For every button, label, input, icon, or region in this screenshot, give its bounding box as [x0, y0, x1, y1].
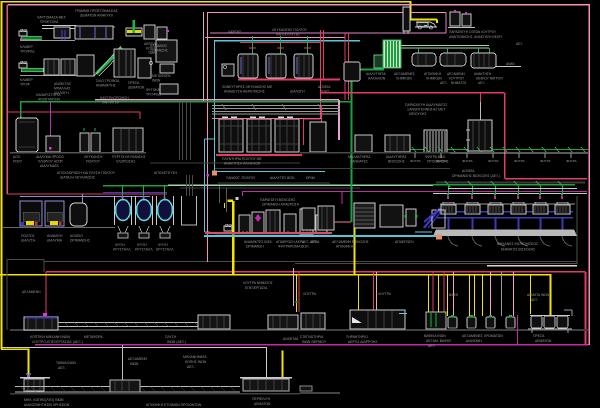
svg-text:ΔΕΞ. ΩΡΙΜ.: ΔΕΞ. ΩΡΙΜ.	[302, 240, 320, 244]
svg-text:ΞΗΡΑΝΤΗΡΙΟ: ΞΗΡΑΝΤΗΡΙΟ	[346, 335, 368, 339]
svg-text:ΑΠΟΧΛΩΡΙΩΣΗ ΚΑΙ ΠΛΥΣΗ ΠΟΛΤΟΥ: ΑΠΟΧΛΩΡΙΩΣΗ ΚΑΙ ΠΛΥΣΗ ΠΟΛΤΟΥ	[57, 171, 116, 175]
svg-text:ΦΙΛΤΡΑ: ΦΙΛΤΡΑ	[436, 159, 447, 163]
svg-text:ΝΗΜΑΤΟΣ ΒΙΣΚΟΖΗΣ: ΝΗΜΑΤΟΣ ΒΙΣΚΟΖΗΣ	[501, 248, 535, 252]
svg-text:ΞΑΝΘΟΓΕΝΝΗΣΗΣ ΜΕΤ.: ΞΑΝΘΟΓΕΝΝΗΣΗΣ ΜΕΤ.	[407, 108, 446, 112]
svg-text:ΔΙΑΚΟΣΜΗΤΙΚΩΝ ΧΡΗΣΕΩΝ: ΔΙΑΚΟΣΜΗΤΙΚΩΝ ΧΡΗΣΕΩΝ	[24, 403, 70, 407]
svg-text:ΔΕΞ.: ΔΕΞ.	[428, 344, 436, 348]
svg-text:ΒΙΣΚΟΖΗΣ: ΒΙΣΚΟΖΗΣ	[388, 160, 405, 164]
svg-text:ΔΕΜΑΤΩΝ: ΔΕΜΑΤΩΝ	[254, 402, 271, 406]
svg-text:ΤΡΟΦΟΔ: ΤΡΟΦΟΔ	[20, 50, 35, 54]
svg-text:ΦΙΛΤΡΑ: ΦΙΛΤΡΑ	[462, 159, 473, 163]
svg-text:ΚΟΠΤΙΚΗ ΜΗΧΑΝΗ ΙΝΩΝ: ΚΟΠΤΙΚΗ ΜΗΧΑΝΗ ΙΝΩΝ	[30, 335, 70, 339]
svg-text:ΔΙΑΛΥΤΗΡΑΣ: ΔΙΑΛΥΤΗΡΑΣ	[386, 155, 407, 159]
svg-text:ΙΝΩΝ ΘΕΡΜΟΥ: ΙΝΩΝ ΘΕΡΜΟΥ	[302, 340, 327, 344]
svg-text:ΔΙΑΛΥΜΑΤΑ: ΔΙΑΛΥΜΑΤΑ	[40, 164, 59, 168]
svg-text:ΩΡΙΜΑΝΣΗΣ ΒΙΣΚΟΖΗΣ (ΔΕΞ.): ΩΡΙΜΑΝΣΗΣ ΒΙΣΚΟΖΗΣ (ΔΕΞ.)	[452, 174, 500, 178]
svg-text:ΛΟΥΤΡΑ: ΛΟΥΤΡΑ	[303, 292, 317, 296]
svg-text:ΦΙΛΤΡΑ: ΦΙΛΤΡΑ	[540, 159, 551, 163]
svg-text:ΔΕΜΑΤΩΝ ΑΝΑΚΥΚΛ: ΔΕΜΑΤΩΝ ΑΝΑΚΥΚΛ	[80, 14, 114, 18]
svg-text:ΨΥΞΗ: ΨΥΞΗ	[115, 243, 125, 247]
svg-text:ΑΝΑΜΙΚΤΗΣ: ΑΝΑΜΙΚΤΗΣ	[96, 84, 116, 88]
svg-text:ΠΑΡΑΣΚΕΥΗ ΔΙΑΛΥΜΑΤΟΣ: ΠΑΡΑΣΚΕΥΗ ΔΙΑΛΥΜΑΤΟΣ	[405, 103, 447, 107]
svg-text:ΙΝΩΝ (ΔΕΞ.): ΙΝΩΝ (ΔΕΞ.)	[167, 340, 186, 344]
svg-text:ΔΕΞ.: ΔΕΞ.	[187, 365, 195, 369]
svg-text:ΔΙΑΛΥΜΑ: ΔΙΑΛΥΜΑ	[47, 239, 63, 243]
svg-text:ΠΕΡΙΕΛΙΞΗ: ΠΕΡΙΕΛΙΞΗ	[252, 397, 271, 401]
svg-text:ΑΝΑΔΕΥΣΗ ΑΕΡΑ ΠΙΕΣΗΣ: ΑΝΑΔΕΥΣΗ ΑΕΡΑ ΠΙΕΣΗΣ	[224, 90, 265, 94]
svg-text:ΧΛΩΡΙΩΣΗΣ: ΧΛΩΡΙΩΣΗΣ	[116, 160, 135, 164]
svg-text:ΜΗΧΑΝΕΣ ΙΝΟΠΟΙΗΣΕΩΣ: ΜΗΧΑΝΕΣ ΙΝΟΠΟΙΗΣΕΩΣ	[497, 242, 538, 246]
svg-text:ΛΕΥΚΑΝΣΗΣ ΠΟΛΤΟΥ: ΛΕΥΚΑΝΣΗΣ ΠΟΛΤΟΥ	[272, 28, 308, 32]
svg-text:ΧΩΝΕΥΤΗΡΕΣ ΛΕΥΚΑΝΣΗΣ ΜΕ: ΧΩΝΕΥΤΗΡΕΣ ΛΕΥΚΑΝΣΗΣ ΜΕ	[222, 85, 273, 89]
svg-text:ΨΥΞΗ: ΨΥΞΗ	[137, 243, 147, 247]
svg-text:ΠΛΥΣΗ: ΠΛΥΣΗ	[165, 335, 177, 339]
svg-text:ΩΡΙΜΑΝΣΗΣ: ΩΡΙΜΑΝΣΗΣ	[70, 239, 90, 243]
svg-text:ΔΕΜΑΤΑ ΙΝΩΝ: ΔΕΜΑΤΑ ΙΝΩΝ	[527, 293, 550, 297]
svg-text:ΑΝΑΚΤΗΣΗ ΑΛΚΑΛΙΩΝ: ΑΝΑΚΤΗΣΗ ΑΛΚΑΛΙΩΝ	[224, 162, 261, 166]
svg-text:ΑΝΑΜΙΚΤΕΣ ΒΙΣΚ.: ΑΝΑΜΙΚΤΕΣ ΒΙΣΚ.	[244, 240, 273, 244]
svg-text:ΑΠΟΘΗΚΗ: ΑΠΟΘΗΚΗ	[424, 72, 442, 76]
svg-text:ΦΙΛΤΡΑ: ΦΙΛΤΡΑ	[514, 159, 525, 163]
svg-text:ΑΝΑΚ.: ΑΝΑΚ.	[506, 62, 516, 66]
svg-text:ΛΟΥΤΡΑ: ΛΟΥΤΡΑ	[378, 292, 392, 296]
svg-text:ΑΝΟΙΓΜΑΤΩΝ: ΑΝΟΙΓΜΑΤΩΝ	[38, 98, 61, 102]
svg-text:ΙΝΩΝ: ΙΝΩΝ	[130, 362, 139, 366]
svg-text:ΑΝΑΚΤΗΣΗ: ΑΝΑΚΤΗΣΗ	[474, 72, 492, 76]
svg-text:ΦΙΛΤΡΑ: ΦΙΛΤΡΑ	[566, 159, 577, 163]
svg-text:ΧΑΡΤΗΣ: ΧΑΡΤΗΣ	[228, 30, 241, 34]
svg-text:ΔΙΑΛΟΓΗ: ΔΙΑΛΟΓΗ	[290, 90, 305, 94]
svg-text:ΑΝΑΜΙΞΗ: ΑΝΑΜΙΞΗ	[47, 234, 63, 238]
svg-text:ΠΟΛΤΟΣ: ΠΟΛΤΟΣ	[21, 234, 35, 238]
svg-text:ΚΡΥΣΤΑΛΛ.: ΚΡΥΣΤΑΛΛ.	[113, 248, 131, 252]
svg-text:ΚΛΙΜΕΡ: ΚΛΙΜΕΡ	[20, 78, 34, 82]
svg-text:ΔΙΑΛΥΜΑ ΠΡΟΣΘ.: ΔΙΑΛΥΜΑ ΠΡΟΣΘ.	[36, 155, 65, 159]
svg-text:ΔΟΧΕΙΑ: ΔΟΧΕΙΑ	[462, 169, 475, 173]
svg-text:ΧΗΜΙΚΩΝ: ΧΗΜΙΚΩΝ	[426, 77, 442, 81]
svg-text:ΞΑΝΘΑΤΕΣ: ΞΑΝΘΑΤΕΣ	[350, 160, 368, 164]
svg-text:ΔΙΑΝΟΜΗ: ΔΙΑΝΟΜΗ	[466, 339, 482, 343]
svg-text:ΒΑΦΕΙΑ ΙΝΩΝ: ΒΑΦΕΙΑ ΙΝΩΝ	[424, 334, 446, 338]
svg-text:ΜΕΤΑΦΟΡΑ: ΜΕΤΑΦΟΡΑ	[84, 335, 103, 339]
svg-text:ΠΥΡΓΟΙ ΛΕΥΚΑΝΣΗΣ: ΠΥΡΓΟΙ ΛΕΥΚΑΝΣΗΣ	[112, 155, 146, 159]
svg-text:ΔΙΑΛΥΣΗ: ΔΙΑΛΥΣΗ	[21, 239, 36, 243]
svg-text:ΔΕΞ.: ΔΕΞ.	[531, 298, 539, 302]
svg-text:ΚΡΥΣΤΑΛΛ.: ΚΡΥΣΤΑΛΛ.	[156, 248, 174, 252]
svg-text:ΜΗΧ. ΚΟΠΗΣ(ΛΥΟ) ΙΝΩΝ: ΜΗΧ. ΚΟΠΗΣ(ΛΥΟ) ΙΝΩΝ	[24, 398, 64, 402]
svg-text:ΤΑΙΝΙΑ ΙΝΩΝ: ΤΑΙΝΙΑ ΙΝΩΝ	[56, 361, 76, 365]
svg-text:ΠΑΡΑΓΩΓΗ ΒΙΣΚΟΖΗΣ: ΠΑΡΑΓΩΓΗ ΒΙΣΚΟΖΗΣ	[260, 198, 295, 202]
svg-text:ΔΕΞ.: ΔΕΞ.	[440, 81, 448, 85]
svg-text:ΑΝΑΓΕΝΝΗΣΗΣ, ΑΝΑΚΤΗΣΗ ΘΕΙΟΥ: ΑΝΑΓΕΝΝΗΣΗΣ, ΑΝΑΚΤΗΣΗ ΘΕΙΟΥ	[449, 35, 503, 39]
svg-text:ΠΛΥΝΤΗΡΙΑ ΠΟΛΤΟΥ ΜΕ: ΠΛΥΝΤΗΡΙΑ ΠΟΛΤΟΥ ΜΕ	[222, 157, 262, 161]
svg-text:ΚΑΙ ΠΛΥΣΗ: ΚΑΙ ΠΛΥΣΗ	[102, 101, 120, 105]
svg-text:ΘΕΙΟΥΧΗΣ: ΘΕΙΟΥΧΗΣ	[409, 112, 426, 116]
svg-text:ΜΕΤΑΦΟΡΑ: ΜΕΤΑΦΟΡΑ	[152, 74, 171, 78]
svg-text:ΞΗΡΑΝΣΗΣ: ΞΗΡΑΝΣΗΣ	[150, 49, 168, 53]
svg-text:ΩΡΙΜΑΝΣΗ ΑΠΑΕΡΩΣΗ: ΩΡΙΜΑΝΣΗ ΑΠΑΕΡΩΣΗ	[262, 203, 300, 207]
svg-text:ΔΕΜΑΤΩΝ: ΔΕΜΑΤΩΝ	[128, 86, 145, 90]
svg-text:ΑΠΟΘΗΚΗ ΕΤΟΙΜΩΝ ΠΡΟΙΟΝΤΩΝ: ΑΠΟΘΗΚΗ ΕΤΟΙΜΩΝ ΠΡΟΙΟΝΤΩΝ	[146, 403, 202, 407]
svg-text:ΣΙΛΟ ΤΡΟΦΟΔ: ΣΙΛΟ ΤΡΟΦΟΔ	[96, 79, 120, 83]
svg-text:ΚΡΥΣΤΑΛΛ.: ΚΡΥΣΤΑΛΛ.	[135, 248, 153, 252]
svg-text:ΕΠΕΞΕΡΓΑΣΙΑ: ΕΠΕΞΕΡΓΑΣΙΑ	[245, 286, 268, 290]
svg-text:ΑΝΟΙΓΜΑ: ΑΝΟΙΓΜΑ	[283, 337, 299, 341]
svg-text:ΠΑΡΑΣΚΕΥΗ ΟΞΕΩΝ ΛΟΥΤΡΟΥ: ΠΑΡΑΣΚΕΥΗ ΟΞΕΩΝ ΛΟΥΤΡΟΥ	[449, 30, 497, 34]
svg-text:ΔΕΞΑΜΕΝΗ ΒΙΣΚΟΖΗΣ: ΔΕΞΑΜΕΝΗ ΒΙΣΚΟΖΗΣ	[332, 240, 369, 244]
svg-text:ΙΝΩΝ: ΙΝΩΝ	[152, 79, 161, 83]
svg-text:ΔΟΧΕΙΑ: ΔΟΧΕΙΑ	[318, 85, 331, 89]
svg-text:ΔΙΑΤΑΞΗ ΛΕΥΚΑΝΣΗΣ: ΔΙΑΤΑΞΗ ΛΕΥΚΑΝΣΗΣ	[60, 176, 95, 180]
svg-text:ΘΕΙΙΚΟΥ ΝΑΤΡΙΟΥ: ΘΕΙΙΚΟΥ ΝΑΤΡΙΟΥ	[476, 77, 504, 81]
svg-text:ΔΕΞΑΜΕΝΗ: ΔΕΞΑΜΕΝΗ	[22, 290, 41, 294]
svg-text:ΜΗΧΑΝΗΜΑΤΑ: ΜΗΧΑΝΗΜΑΤΑ	[183, 355, 207, 359]
svg-text:ΦΙΛΤΡΑΡΙΣΜΑ ΒΙΣΚ.: ΦΙΛΤΡΑΡΙΣΜΑ ΒΙΣΚ.	[278, 245, 310, 249]
svg-text:ΔΙΑΛΥΤΕΣ ΒΙΣΚ.: ΔΙΑΛΥΤΕΣ ΒΙΣΚ.	[270, 176, 296, 180]
svg-text:ΠΡΟΕΤΟΙΜ: ΠΡΟΕΤΟΙΜ	[40, 20, 58, 24]
svg-text:ΩΡΙΜΑΝΣΗ: ΩΡΙΜΑΝΣΗ	[246, 245, 264, 249]
svg-text:ΚΛΙΒΑΝΟΣ: ΚΛΙΒΑΝΟΣ	[150, 44, 167, 48]
svg-text:ΛΟΥΤΡΟΥ: ΛΟΥΤΡΟΥ	[449, 77, 465, 81]
svg-text:ΔΕΜΑΤΩΝ: ΔΕΜΑΤΩΝ	[535, 339, 552, 343]
svg-text:ΒΑΦΗ: ΒΑΦΗ	[449, 293, 459, 297]
svg-text:ΚΑΘΑΡΙΣΤΗΡΙΑ: ΚΑΘΑΡΙΣΤΗΡΙΑ	[36, 93, 61, 97]
svg-text:ΔΕΞΑΜΕΝΕΣ ΧΡΩΜΑΤΩΝ: ΔΕΞΑΜΕΝΕΣ ΧΡΩΜΑΤΩΝ	[462, 334, 503, 338]
svg-text:ΔΕΞ.: ΔΕΞ.	[478, 81, 485, 85]
svg-text:ΛΕΥΚΑΝΣΗ: ΛΕΥΚΑΝΣΗ	[84, 155, 103, 159]
svg-text:ΣΤΕΓΝΩΤΗΡΙΑ: ΣΤΕΓΝΩΤΗΡΙΑ	[300, 335, 324, 339]
svg-text:ΛΟΥΤΡΑ ΝΗΜΑΤΟΣ: ΛΟΥΤΡΑ ΝΗΜΑΤΟΣ	[243, 281, 273, 285]
svg-text:ΜΑΛΑΚΤΗΡΑΣ: ΜΑΛΑΚΤΗΡΑΣ	[348, 155, 371, 159]
svg-text:ΑΠΑΕΡΩΣΗ: ΑΠΑΕΡΩΣΗ	[395, 240, 414, 244]
svg-text:ΧΑΡΤΟΜΑΖΑ ΜΕΤ.: ΧΑΡΤΟΜΑΖΑ ΜΕΤ.	[37, 16, 66, 20]
svg-text:ΔΟΧΕΙΟ: ΔΟΧΕΙΟ	[70, 234, 83, 238]
svg-text:ΞΑΝΘΟΓ. ΠΟΛΤΟΥ: ΞΑΝΘΟΓ. ΠΟΛΤΟΥ	[226, 176, 256, 180]
svg-text:ΤΡΟΦ: ΤΡΟΦ	[20, 83, 30, 87]
svg-text:ΧΛΩΡΙΟΥ ΑΣΠΡ.: ΧΛΩΡΙΟΥ ΑΣΠΡ.	[38, 160, 64, 164]
svg-text:ΑΠΟΘΗΚΗΣ: ΑΠΟΘΗΚΗΣ	[336, 245, 355, 249]
svg-text:ΑΛΚΑΛΙΩΝ: ΑΛΚΑΛΙΩΝ	[368, 77, 386, 81]
svg-text:ΨΥΞΗ: ΨΥΞΗ	[158, 243, 168, 247]
svg-text:ΔΕΞ.: ΔΕΞ.	[58, 366, 66, 370]
svg-text:ΓΡΑΜΜΗ ΠΡΟΕΤΟΙΜΑΣΙΑΣ: ΓΡΑΜΜΗ ΠΡΟΕΤΟΙΜΑΣΙΑΣ	[75, 9, 118, 13]
svg-text:ΔΕΞΑΜ. ΒΑΦΗΣ: ΔΕΞΑΜ. ΒΑΦΗΣ	[426, 339, 451, 343]
svg-text:ΔΕΞΑΜΕΝΗ: ΔΕΞΑΜΕΝΗ	[447, 72, 466, 76]
svg-text:ΛΟΥΤΡΟ-ΕΠΕΞΕΡΓΑΣΙΑΣ (ΔΕΞ.): ΛΟΥΤΡΟ-ΕΠΕΞΕΡΓΑΣΙΑΣ (ΔΕΞ.)	[32, 340, 83, 344]
svg-text:ΔΟΧ.: ΔΟΧ.	[13, 155, 21, 159]
svg-text:ΦΙΛΤΡΑ: ΦΙΛΤΡΑ	[488, 159, 499, 163]
svg-text:ΑΠΑΕΡΩΣΗ ΑΕΡΑ: ΑΠΑΕΡΩΣΗ ΑΕΡΑ	[276, 240, 305, 244]
svg-text:ΠΟΛΤ: ΠΟΛΤ	[13, 160, 22, 164]
svg-text:ΔΕΞΑΜΕΝΗ: ΔΕΞΑΜΕΝΗ	[128, 357, 148, 361]
svg-text:ΚΟΠΗΣ ΙΝΩΝ: ΚΟΠΗΣ ΙΝΩΝ	[185, 360, 207, 364]
svg-text:ΑΠΟΧΕΤΕΥΣΗ: ΑΠΟΧΕΤΕΥΣΗ	[154, 171, 178, 175]
svg-text:ΑΝΟΙΚΤΗΣ: ΑΝΟΙΚΤΗΣ	[54, 82, 71, 86]
svg-text:ΦΙΛΤΡΑ: ΦΙΛΤΡΑ	[410, 159, 421, 163]
svg-text:ΝΗΜΑΤΟΣ: ΝΗΜΑΤΟΣ	[451, 81, 467, 85]
svg-text:ΠΡΕΣΑ: ΠΡΕΣΑ	[128, 81, 140, 85]
svg-text:ΜΠΑΛΛΑΣ: ΜΠΑΛΛΑΣ	[54, 87, 70, 91]
svg-text:ΔΕΞΑΜΕΝΕΣ: ΔΕΞΑΜΕΝΕΣ	[394, 72, 415, 76]
svg-text:ΤΡΟΦΟΔ.: ΤΡΟΦΟΔ.	[146, 93, 162, 97]
svg-text:ΧΗΜΙΚΩΝ: ΧΗΜΙΚΩΝ	[396, 77, 412, 81]
svg-text:ΠΡΕΣΑ: ΠΡΕΣΑ	[533, 334, 545, 338]
svg-text:ΑΕΡΟΣ ΔΙΑΡΡΟΗΣ: ΑΕΡΟΣ ΔΙΑΡΡΟΗΣ	[348, 340, 377, 344]
svg-text:ΠΟΛΤΟΥ: ΠΟΛΤΟΥ	[86, 160, 101, 164]
svg-text:ΚΛΙΜΕΡ: ΚΛΙΜΕΡ	[20, 45, 34, 49]
svg-text:ΔΕΞ.: ΔΕΞ.	[516, 42, 523, 46]
svg-text:ΔΙΑΛΥΤΗΡΙΑ: ΔΙΑΛΥΤΗΡΙΑ	[366, 72, 386, 76]
svg-text:ΚΑΙ ΕΚΠΛΥΣΗΣ: ΚΑΙ ΕΚΠΛΥΣΗΣ	[276, 33, 300, 37]
svg-text:ΩΡΙΜ.: ΩΡΙΜ.	[306, 176, 316, 180]
